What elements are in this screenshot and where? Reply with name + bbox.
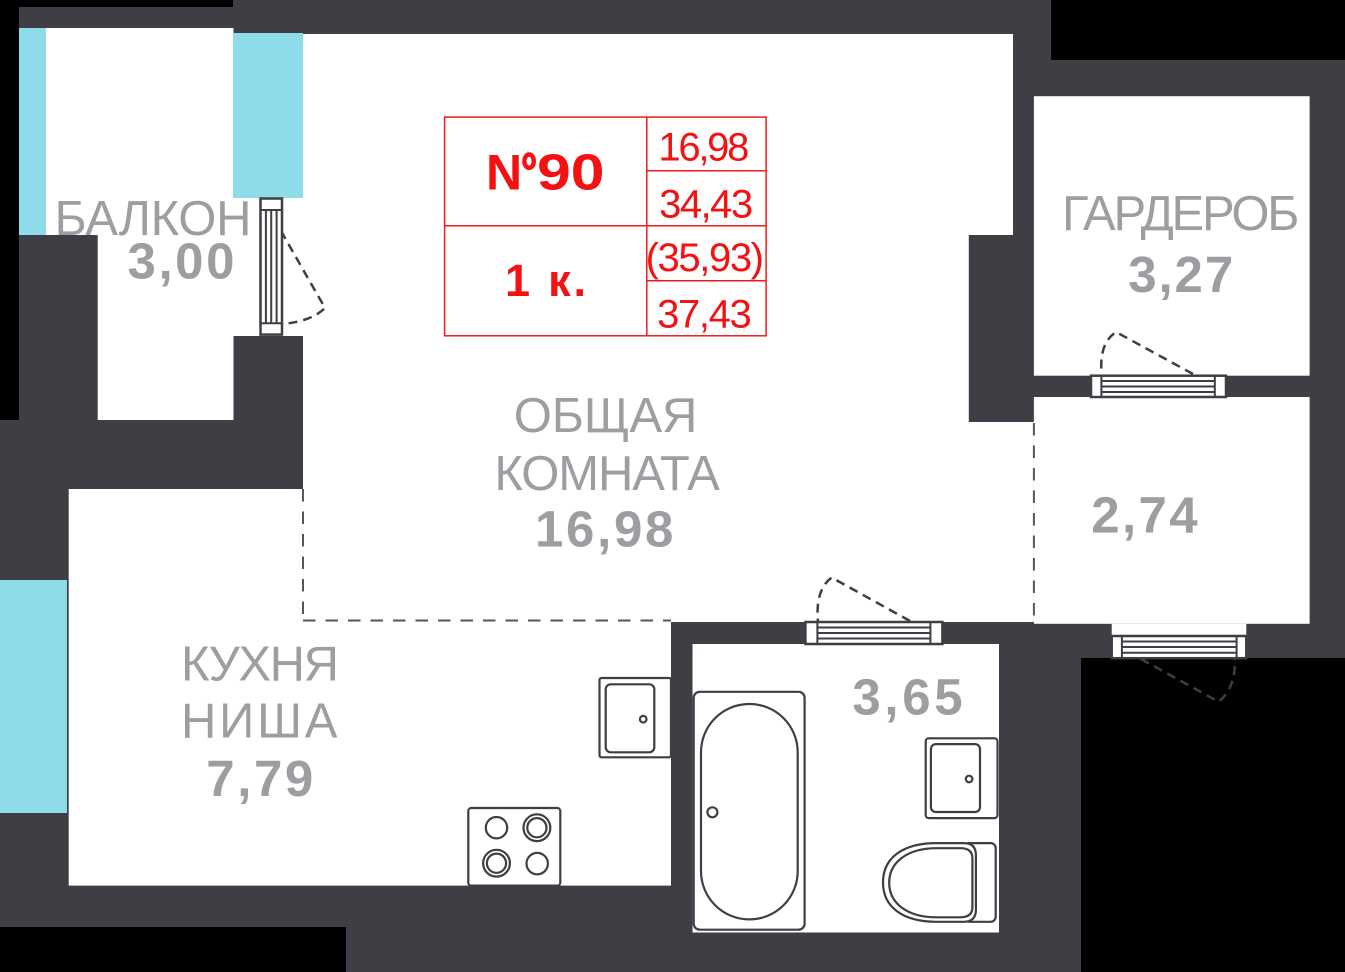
svg-text:КУХНЯ: КУХНЯ — [181, 637, 339, 691]
svg-text:3,00: 3,00 — [128, 232, 235, 289]
svg-text:3,65: 3,65 — [852, 669, 962, 726]
svg-text:3,27: 3,27 — [1128, 246, 1233, 303]
svg-text:(35,93): (35,93) — [646, 236, 764, 280]
svg-text:N: N — [486, 145, 522, 201]
svg-text:НИША: НИША — [181, 694, 338, 748]
svg-text:90: 90 — [537, 144, 605, 201]
svg-text:34,43: 34,43 — [659, 182, 753, 226]
svg-text:2,74: 2,74 — [1091, 487, 1198, 544]
svg-text:16,98: 16,98 — [535, 501, 673, 558]
svg-text:ОБЩАЯ: ОБЩАЯ — [514, 389, 698, 443]
svg-text:7,79: 7,79 — [206, 750, 313, 807]
svg-text:16,98: 16,98 — [658, 126, 749, 170]
svg-text:ГАРДЕРОБ: ГАРДЕРОБ — [1062, 187, 1299, 241]
svg-text:37,43: 37,43 — [657, 292, 752, 336]
svg-text:КОМНАТА: КОМНАТА — [494, 447, 720, 501]
